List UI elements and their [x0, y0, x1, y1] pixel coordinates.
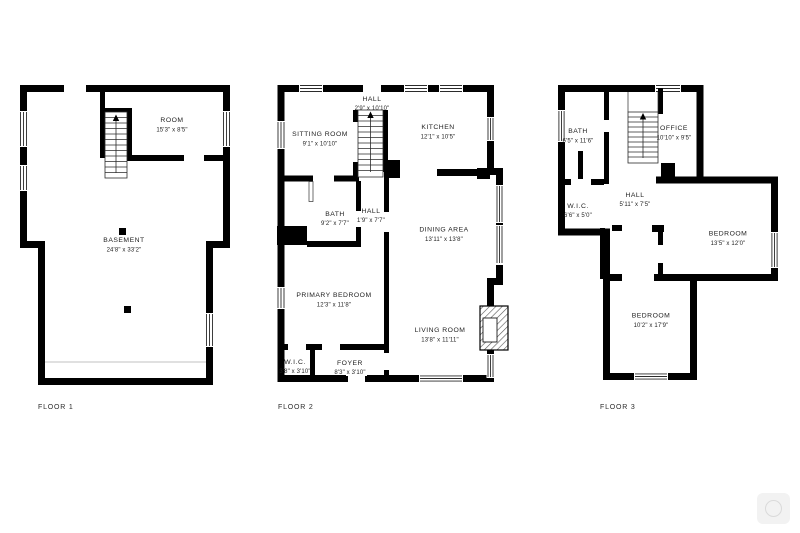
room-dims: 5'11" x 7'5" — [620, 202, 651, 208]
room-name: KITCHEN — [421, 124, 454, 131]
window — [277, 121, 286, 149]
room-dims: 9'1" x 10'10" — [303, 142, 338, 148]
support-column — [119, 228, 126, 235]
window — [496, 225, 505, 265]
room-name: BEDROOM — [632, 313, 671, 320]
door-leaf — [309, 182, 313, 202]
room-name: LIVING ROOM — [415, 327, 466, 334]
window — [634, 372, 668, 381]
floorplan-svg: ROOM 15'3" x 8'5" BASEMENT 24'8" x 33'2" — [0, 0, 800, 533]
room-dims: 15'3" x 8'5" — [156, 128, 187, 134]
fireplace — [480, 306, 508, 350]
window — [222, 111, 231, 147]
window — [299, 84, 323, 93]
floor-3-plan: BATH 6'5" x 11'6" OFFICE 10'10" x 9'5" W… — [557, 84, 780, 381]
room-name: OFFICE — [660, 125, 688, 132]
room-dims: 13'5" x 12'0" — [711, 241, 746, 247]
window — [439, 84, 463, 93]
window — [487, 117, 496, 141]
floor-3-label: FLOOR 3 — [600, 404, 636, 411]
staircase — [358, 110, 383, 177]
room-name: BASEMENT — [103, 237, 144, 244]
window — [404, 84, 428, 93]
window — [496, 185, 505, 223]
room-name: HALL — [625, 192, 644, 199]
staircase — [105, 112, 127, 178]
circle-icon — [765, 500, 782, 517]
room-dims: 10'10" x 9'5" — [657, 136, 692, 142]
room-dims: 12'3" x 11'8" — [317, 303, 351, 309]
room-name: FOYER — [337, 360, 363, 367]
room-dims: 6'5" x 11'6" — [563, 139, 594, 145]
room-dims: 24'8" x 33'2" — [107, 248, 142, 254]
room-name: W.I.C. — [567, 203, 589, 210]
room-dims: 12'1" x 10'5" — [421, 135, 456, 141]
door-opening — [361, 84, 383, 93]
room-name: HALL — [362, 96, 381, 103]
room-name: BEDROOM — [709, 231, 748, 238]
room-dims: 9'2" x 7'7" — [321, 221, 349, 227]
window — [770, 232, 779, 268]
floor-2-label: FLOOR 2 — [278, 404, 314, 411]
window — [557, 110, 567, 142]
room-dims: 3'8" x 3'10" — [279, 369, 310, 375]
room-dims: 1'9" x 7'7" — [357, 218, 385, 224]
support-column — [124, 306, 131, 313]
room-dims: 8'3" x 3'10" — [334, 370, 365, 376]
window — [19, 165, 28, 191]
room-dims: 2'9" x 10'10" — [355, 106, 390, 112]
window — [19, 111, 28, 147]
room-dims: 6'6" x 5'0" — [564, 213, 592, 219]
window — [205, 313, 214, 347]
room-name: DINING AREA — [419, 227, 468, 234]
room-name: SITTING ROOM — [292, 131, 348, 138]
floor-2-plan: HALL 2'9" x 10'10" SITTING ROOM 9'1" x 1… — [277, 84, 509, 384]
window — [419, 374, 463, 383]
door-opening — [62, 84, 88, 93]
floor-1-label: FLOOR 1 — [38, 404, 74, 411]
room-name: BATH — [568, 128, 588, 135]
room-name: HALL — [361, 208, 380, 215]
floor-1-plan: ROOM 15'3" x 8'5" BASEMENT 24'8" x 33'2" — [19, 84, 231, 382]
room-dims: 13'8" x 11'11" — [421, 338, 458, 344]
floorplan-image: ROOM 15'3" x 8'5" BASEMENT 24'8" x 33'2" — [0, 0, 800, 533]
room-name: PRIMARY BEDROOM — [296, 292, 371, 299]
room-dims: 13'11" x 13'8" — [425, 237, 463, 243]
room-name: BATH — [325, 211, 345, 218]
window — [487, 354, 496, 378]
room-name: W.I.C. — [284, 359, 306, 366]
room-dims: 10'2" x 17'9" — [634, 323, 669, 329]
room-name: ROOM — [160, 117, 183, 124]
window — [277, 287, 286, 309]
corner-badge — [757, 493, 790, 524]
